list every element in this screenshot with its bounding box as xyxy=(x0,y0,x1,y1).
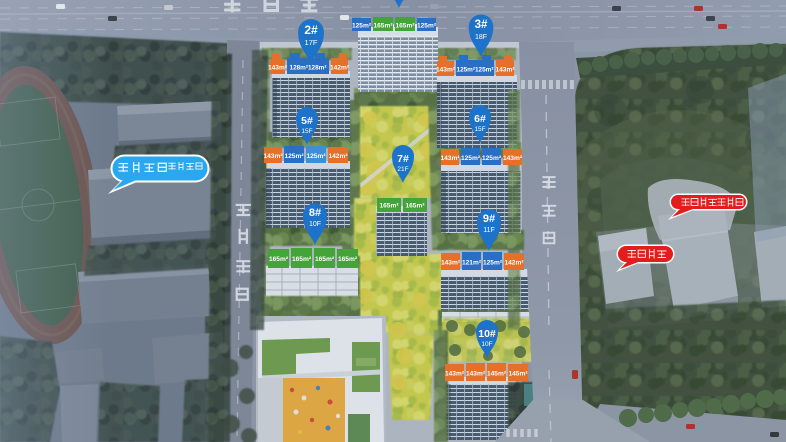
svg-text:17F: 17F xyxy=(305,38,318,47)
svg-text:165m²: 165m² xyxy=(395,23,415,30)
svg-text:143m²: 143m² xyxy=(440,155,460,162)
svg-text:8#: 8# xyxy=(309,207,321,219)
svg-text:6#: 6# xyxy=(474,113,486,125)
svg-text:15F: 15F xyxy=(474,126,485,133)
svg-text:125m²: 125m² xyxy=(284,153,304,160)
svg-text:11F: 11F xyxy=(483,227,495,234)
svg-text:125m²: 125m² xyxy=(306,153,326,160)
svg-text:3#: 3# xyxy=(475,19,488,31)
svg-text:165m²: 165m² xyxy=(379,203,399,210)
svg-text:145m²: 145m² xyxy=(487,371,507,378)
svg-text:165m²: 165m² xyxy=(315,256,335,263)
svg-text:128m²128m²: 128m²128m² xyxy=(290,65,327,72)
svg-text:125m²: 125m² xyxy=(483,260,503,267)
svg-text:10F: 10F xyxy=(309,221,321,228)
svg-text:21F: 21F xyxy=(397,166,408,173)
svg-text:145m²: 145m² xyxy=(508,371,528,378)
svg-text:121m²: 121m² xyxy=(462,260,482,267)
svg-text:142m²: 142m² xyxy=(504,260,524,267)
svg-text:165m²: 165m² xyxy=(405,203,425,210)
svg-text:143m²: 143m² xyxy=(263,153,283,160)
svg-text:143m²: 143m² xyxy=(466,371,486,378)
svg-text:142m²: 142m² xyxy=(328,153,348,160)
svg-text:7#: 7# xyxy=(397,153,409,165)
svg-text:125m²: 125m² xyxy=(417,23,437,30)
svg-text:143m²: 143m² xyxy=(445,371,465,378)
svg-text:125m²125m²: 125m²125m² xyxy=(457,67,494,74)
svg-text:143m²: 143m² xyxy=(441,260,461,267)
svg-text:125m²: 125m² xyxy=(352,23,372,30)
svg-text:10F: 10F xyxy=(481,341,492,348)
svg-text:143m²: 143m² xyxy=(495,67,515,74)
svg-text:125m²: 125m² xyxy=(461,155,481,162)
svg-text:5#: 5# xyxy=(301,115,313,127)
svg-text:142m²: 142m² xyxy=(330,65,350,72)
svg-text:2#: 2# xyxy=(304,23,318,37)
svg-text:18F: 18F xyxy=(475,34,487,41)
svg-text:165m²: 165m² xyxy=(292,256,312,263)
svg-text:15F: 15F xyxy=(301,128,312,135)
svg-text:165m²: 165m² xyxy=(338,256,358,263)
svg-text:143m²: 143m² xyxy=(503,155,523,162)
svg-text:9#: 9# xyxy=(483,213,495,225)
svg-text:125m²: 125m² xyxy=(482,155,502,162)
svg-text:143m²: 143m² xyxy=(436,67,456,74)
svg-text:10#: 10# xyxy=(478,328,496,340)
svg-text:165m²: 165m² xyxy=(373,23,393,30)
svg-text:165m²: 165m² xyxy=(269,256,289,263)
svg-text:143m²: 143m² xyxy=(268,65,288,72)
